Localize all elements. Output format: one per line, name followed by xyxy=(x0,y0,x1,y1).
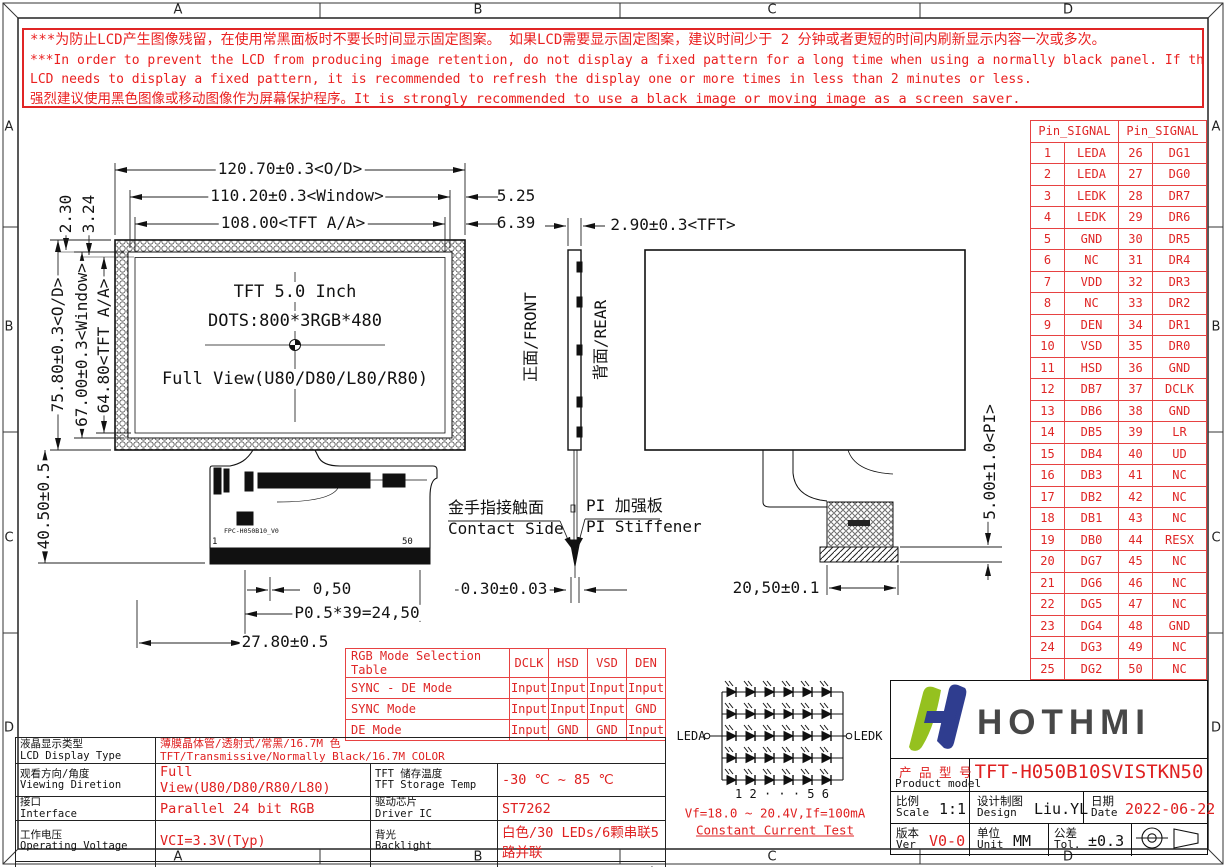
pin-number-cell: 10 xyxy=(1031,336,1065,358)
led-diode xyxy=(820,725,831,741)
hothmi-logo-mark xyxy=(897,681,977,758)
spec-value: ST7262 xyxy=(498,797,666,821)
image-retention-warning: ***为防止LCD产生图像残留，在使用常黑面板时不要长时间显示固定图案。 如果L… xyxy=(22,28,1204,108)
pi-stiffener-zh: PI 加强板 xyxy=(586,495,706,516)
led-diode xyxy=(782,769,793,785)
pin-number-cell: 25 xyxy=(1031,658,1065,680)
pin-row: 15DB440UD xyxy=(1031,443,1207,465)
pin-signal-cell: RESX xyxy=(1153,529,1207,551)
pin-signal-cell: NC xyxy=(1153,508,1207,530)
rgb-mode-label: SYNC Mode xyxy=(346,699,510,720)
pin-number-cell: 9 xyxy=(1031,314,1065,336)
spec-label: 工作电压Operating Voltage xyxy=(16,821,156,862)
pin-number-cell: 18 xyxy=(1031,508,1065,530)
side-view xyxy=(568,250,582,578)
spec-row-display-type: 液晶显示类型LCD Display Type 薄膜晶体管/透射式/常黑/16.7… xyxy=(16,738,666,764)
pin-signal-cell: NC xyxy=(1153,465,1207,487)
warning-line-zh: ***为防止LCD产生图像残留，在使用常黑面板时不要长时间显示固定图案。 如果L… xyxy=(30,31,1196,51)
spec-value-display-type: 薄膜晶体管/透射式/常黑/16.7M 色TFT/Transmissive/Nor… xyxy=(156,738,666,764)
spec-value: Full View(U80/D80/R80/L80) xyxy=(156,764,371,797)
zone-letter-top-b: B xyxy=(474,3,483,18)
pin-signal-cell: DG6 xyxy=(1065,572,1119,594)
led-diode xyxy=(763,769,774,785)
spec-row: TFT 工作温度TFT Operating Temp-30 ℃ ~ 80 ℃液晶… xyxy=(16,862,666,867)
led-diode xyxy=(744,725,755,741)
pin-signal-cell: DG1 xyxy=(1153,142,1207,164)
version-label: 版本Ver xyxy=(896,827,919,851)
pin-number-cell: 50 xyxy=(1119,658,1153,680)
led-diode xyxy=(782,681,793,697)
pin-signal-cell: DB0 xyxy=(1065,529,1119,551)
tolerance-label: 公差Tol. xyxy=(1054,827,1081,851)
scale-value: 1:1 xyxy=(939,800,966,818)
contact-side-zh: 金手指接触面 xyxy=(448,497,560,518)
pin-number-cell: 47 xyxy=(1119,594,1153,616)
zone-letter-right-c: C xyxy=(1211,531,1220,546)
pin-table-header-right: Pin_SIGNAL xyxy=(1119,121,1207,143)
pin-row: 1LEDA26DG1 xyxy=(1031,142,1207,164)
pin-signal-cell: DB7 xyxy=(1065,379,1119,401)
pin-number-cell: 28 xyxy=(1119,185,1153,207)
pin-row: 20DG745NC xyxy=(1031,551,1207,573)
spec-label: 观看方向/角度Viewing Diretion xyxy=(16,764,156,797)
pin-row: 9DEN34DR1 xyxy=(1031,314,1207,336)
pin-number-cell: 21 xyxy=(1031,572,1065,594)
spec-label: TFT 工作温度TFT Operating Temp xyxy=(16,862,156,867)
pin-number-cell: 32 xyxy=(1119,271,1153,293)
pin-number-cell: 6 xyxy=(1031,250,1065,272)
rgb-mode-value: Input xyxy=(549,699,588,720)
pin-table-header-row: Pin_SIGNAL Pin_SIGNAL xyxy=(1031,121,1207,143)
led-test-note: Constant Current Test xyxy=(696,823,854,838)
design-value: Liu.YL xyxy=(1034,800,1088,818)
led-diode xyxy=(744,747,755,763)
pin-number-cell: 40 xyxy=(1119,443,1153,465)
pin-number-cell: 31 xyxy=(1119,250,1153,272)
pin-signal-cell: LEDA xyxy=(1065,142,1119,164)
pin-signal-cell: GND xyxy=(1153,400,1207,422)
pin-row: 22DG547NC xyxy=(1031,594,1207,616)
pin-number-cell: 7 xyxy=(1031,271,1065,293)
rgb-col-hsd: HSD xyxy=(549,649,588,678)
dim-outline-height: 75.80±0.3<O/D> xyxy=(50,276,66,415)
pin-row: 25DG250NC xyxy=(1031,658,1207,680)
fpc-pin-50-label: 50 xyxy=(402,537,413,547)
spec-label-display-type: 液晶显示类型LCD Display Type xyxy=(16,738,156,764)
pin-number-cell: 46 xyxy=(1119,572,1153,594)
dim-active-area-width: 108.00<TFT A/A> xyxy=(219,215,368,231)
contact-side-en: Contact Side xyxy=(448,518,560,539)
panel-dots-text: DOTS:800*3RGB*480 xyxy=(205,311,385,331)
pin-row: 21DG646NC xyxy=(1031,572,1207,594)
pin-row: 19DB044RESX xyxy=(1031,529,1207,551)
dim-outline-width: 120.70±0.3<O/D> xyxy=(216,161,365,177)
rgb-mode-label: SYNC - DE Mode xyxy=(346,678,510,699)
dim-pin-pitch: P0.5*39=24,50 xyxy=(292,605,421,621)
dim-window-top-offset: 2.30 xyxy=(58,193,74,236)
dim-fpc-offset: 27.80±0.5 xyxy=(240,634,331,650)
lcd-spec-table: 液晶显示类型LCD Display Type 薄膜晶体管/透射式/常黑/16.7… xyxy=(15,737,666,867)
pin-signal-cell: GND xyxy=(1065,228,1119,250)
pin-row: 13DB638GND xyxy=(1031,400,1207,422)
rgb-table-title: RGB Mode Selection Table xyxy=(346,649,510,678)
zone-letter-bottom-c: C xyxy=(767,850,776,865)
dim-fpc-thickness: 0.30±0.03 xyxy=(459,581,550,597)
pin-signal-cell: NC xyxy=(1153,486,1207,508)
rgb-col-dclk: DCLK xyxy=(510,649,549,678)
pin-signal-cell: NC xyxy=(1153,594,1207,616)
rgb-col-vsd: VSD xyxy=(588,649,627,678)
pin-number-cell: 27 xyxy=(1119,164,1153,186)
led-diode xyxy=(763,681,774,697)
pin-row: 16DB341NC xyxy=(1031,465,1207,487)
zone-letter-right-a: A xyxy=(1212,120,1221,135)
pin-row: 23DG448GND xyxy=(1031,615,1207,637)
pin-signal-cell: DB3 xyxy=(1065,465,1119,487)
led-diode xyxy=(820,703,831,719)
pin-number-cell: 29 xyxy=(1119,207,1153,229)
spec-value: 白色/30 LEDs/6颗串联5路并联 xyxy=(498,821,666,862)
pin-number-cell: 44 xyxy=(1119,529,1153,551)
unit-value: MM xyxy=(1013,832,1031,850)
pi-stiffener-label: PI 加强板 PI Stiffener xyxy=(586,495,706,537)
dim-stiffener-width: 20,50±0.1 xyxy=(731,580,822,596)
pin-number-cell: 43 xyxy=(1119,508,1153,530)
rgb-mode-value: Input xyxy=(510,678,549,699)
zone-letter-left-b: B xyxy=(5,320,14,335)
led-diode xyxy=(725,747,736,763)
pin-signal-cell: NC xyxy=(1065,293,1119,315)
pin-number-cell: 22 xyxy=(1031,594,1065,616)
rgb-mode-value: Input xyxy=(627,678,666,699)
pin-row: 10VSD35DR0 xyxy=(1031,336,1207,358)
pin-signal-cell: DB5 xyxy=(1065,422,1119,444)
led-diode xyxy=(801,703,812,719)
pin-number-cell: 14 xyxy=(1031,422,1065,444)
pin-row: 14DB539LR xyxy=(1031,422,1207,444)
product-model-label-en: Product model xyxy=(895,777,981,790)
pin-number-cell: 36 xyxy=(1119,357,1153,379)
pin-signal-cell: DB2 xyxy=(1065,486,1119,508)
dim-pin-width: 0,50 xyxy=(311,581,354,597)
dim-window-edge-offset: 5.25 xyxy=(495,188,538,204)
product-model-value: TFT-H050B10SVISTKN50 xyxy=(971,761,1207,783)
pin-signal-cell: LEDA xyxy=(1065,164,1119,186)
led-diode xyxy=(725,703,736,719)
led-diode xyxy=(725,769,736,785)
pin-row: 2LEDA27DG0 xyxy=(1031,164,1207,186)
brand-name: HOTHMI xyxy=(977,703,1151,743)
warning-line-en2: LCD needs to display a fixed pattern, it… xyxy=(30,70,1196,90)
rgb-mode-value: Input xyxy=(588,699,627,720)
pin-number-cell: 34 xyxy=(1119,314,1153,336)
led-index-row: 1 2 · · · 5 6 xyxy=(735,787,829,801)
unit-label: 单位Unit xyxy=(977,827,1004,851)
pin-number-cell: 4 xyxy=(1031,207,1065,229)
rgb-mode-row: SYNC - DE ModeInputInputInputInput xyxy=(346,678,666,699)
rgb-mode-value: Input xyxy=(549,678,588,699)
pin-number-cell: 37 xyxy=(1119,379,1153,401)
fpc-part-number: FPC-H050B10_V0 xyxy=(224,527,279,535)
pin-row: 3LEDK28DR7 xyxy=(1031,185,1207,207)
led-diode xyxy=(744,703,755,719)
pin-signal-cell: DR7 xyxy=(1153,185,1207,207)
pin-signal-cell: DR3 xyxy=(1153,271,1207,293)
led-diode xyxy=(763,703,774,719)
led-anode-label: LEDA xyxy=(677,729,706,743)
fpc-pin-1-label: 1 xyxy=(212,537,217,547)
led-diode xyxy=(763,725,774,741)
pin-number-cell: 45 xyxy=(1119,551,1153,573)
spec-row: 观看方向/角度Viewing DiretionFull View(U80/D80… xyxy=(16,764,666,797)
pin-signal-cell: NC xyxy=(1153,572,1207,594)
zone-letter-top-d: D xyxy=(1063,3,1073,18)
tolerance-value: ±0.3 xyxy=(1088,832,1124,850)
zone-letter-right-d: D xyxy=(1211,721,1221,736)
rear-side-label: 背面/REAR xyxy=(593,298,609,382)
pin-signal-cell: VSD xyxy=(1065,336,1119,358)
pin-number-cell: 2 xyxy=(1031,164,1065,186)
spec-label: 背光Backlight xyxy=(371,821,498,862)
dim-aa-top-offset: 3.24 xyxy=(81,193,97,236)
spec-value: Parallel 24 bit RGB xyxy=(156,797,371,821)
pin-signal-cell: DG2 xyxy=(1065,658,1119,680)
led-diode xyxy=(744,681,755,697)
pin-signal-cell: DG4 xyxy=(1065,615,1119,637)
pin-signal-cell: NC xyxy=(1065,250,1119,272)
pin-signal-cell: DB4 xyxy=(1065,443,1119,465)
pin-number-cell: 12 xyxy=(1031,379,1065,401)
pin-number-cell: 49 xyxy=(1119,637,1153,659)
pin-number-cell: 1 xyxy=(1031,142,1065,164)
pin-number-cell: 48 xyxy=(1119,615,1153,637)
rgb-mode-value: GND xyxy=(627,699,666,720)
side-dimensions xyxy=(448,218,660,603)
dim-window-height: 67.00±0.3<Window> xyxy=(74,261,90,429)
led-diode xyxy=(763,747,774,763)
contact-side-label: 金手指接触面 Contact Side xyxy=(448,497,560,539)
pin-number-cell: 19 xyxy=(1031,529,1065,551)
rgb-mode-value: Input xyxy=(588,678,627,699)
pi-stiffener-en: PI Stiffener xyxy=(586,516,706,537)
warning-line-en1: ***In order to prevent the LCD from prod… xyxy=(30,51,1196,71)
design-label: 设计制图Design xyxy=(977,795,1023,819)
pin-row: 17DB242NC xyxy=(1031,486,1207,508)
spec-value: -30 ℃ ~ 80 ℃ xyxy=(156,862,371,867)
led-diode xyxy=(725,681,736,697)
pin-number-cell: 5 xyxy=(1031,228,1065,250)
rgb-mode-value: Input xyxy=(510,699,549,720)
pin-signal-cell: DR6 xyxy=(1153,207,1207,229)
dim-pi-height: 5.00±1.0<PI> xyxy=(982,402,998,522)
spec-value: 1000 cd/m²(Typ)/固定电流测试 xyxy=(498,862,666,867)
spec-label: 驱动芯片Driver IC xyxy=(371,797,498,821)
led-diode xyxy=(801,725,812,741)
rgb-mode-row: SYNC ModeInputInputInputGND xyxy=(346,699,666,720)
pin-row: 12DB737DCLK xyxy=(1031,379,1207,401)
pin-number-cell: 41 xyxy=(1119,465,1153,487)
pin-number-cell: 26 xyxy=(1119,142,1153,164)
pin-signal-cell: LEDK xyxy=(1065,185,1119,207)
pin-number-cell: 20 xyxy=(1031,551,1065,573)
pin-signal-cell: LR xyxy=(1153,422,1207,444)
pin-number-cell: 35 xyxy=(1119,336,1153,358)
pin-signal-cell: DB1 xyxy=(1065,508,1119,530)
title-block: HOTHMI 产 品 型 号 Product model TFT-H050B10… xyxy=(890,680,1208,855)
dim-tft-thickness: 2.90±0.3<TFT> xyxy=(608,217,737,233)
pin-signal-cell: HSD xyxy=(1065,357,1119,379)
datasheet-page: A B C D A B C D A B C D A B C D ***为防止LC… xyxy=(0,0,1226,867)
pin-number-cell: 24 xyxy=(1031,637,1065,659)
pin-signal-cell: GND xyxy=(1153,615,1207,637)
led-vf-spec: Vf=18.0 ~ 20.4V,If=100mA xyxy=(685,806,866,821)
zone-letter-top-a: A xyxy=(174,3,183,18)
zone-letter-left-c: C xyxy=(4,531,13,546)
pin-row: 7VDD32DR3 xyxy=(1031,271,1207,293)
pin-number-cell: 8 xyxy=(1031,293,1065,315)
led-diode xyxy=(801,681,812,697)
version-value: V0-0 xyxy=(929,832,965,850)
warning-line-mixed: 强烈建议使用黑色图像或移动图像作为屏幕保护程序。It is strongly r… xyxy=(30,90,1196,109)
pin-number-cell: 16 xyxy=(1031,465,1065,487)
zone-letter-left-d: D xyxy=(4,721,14,736)
led-diode xyxy=(725,725,736,741)
pin-row: 4LEDK29DR6 xyxy=(1031,207,1207,229)
spec-value: -30 ℃ ~ 85 ℃ xyxy=(498,764,666,797)
dim-window-width: 110.20±0.3<Window> xyxy=(208,188,385,204)
dim-fpc-length: 40.50±0.5 xyxy=(36,461,52,552)
zone-letter-right-b: B xyxy=(1212,320,1221,335)
date-label: 日期Date xyxy=(1091,795,1118,819)
dim-aa-edge-offset: 6.39 xyxy=(495,215,538,231)
pin-signal-cell: NC xyxy=(1153,551,1207,573)
zone-letter-top-c: C xyxy=(767,3,776,18)
pin-row: 18DB143NC xyxy=(1031,508,1207,530)
pin-row: 11HSD36GND xyxy=(1031,357,1207,379)
pin-number-cell: 39 xyxy=(1119,422,1153,444)
pin-table-header-left: Pin_SIGNAL xyxy=(1031,121,1119,143)
pin-number-cell: 23 xyxy=(1031,615,1065,637)
pin-signal-cell: UD xyxy=(1153,443,1207,465)
pin-signal-cell: VDD xyxy=(1065,271,1119,293)
pin-signal-cell: DR0 xyxy=(1153,336,1207,358)
led-diode xyxy=(782,703,793,719)
led-diode xyxy=(820,769,831,785)
pin-number-cell: 17 xyxy=(1031,486,1065,508)
pin-signal-cell: NC xyxy=(1153,658,1207,680)
pin-number-cell: 3 xyxy=(1031,185,1065,207)
pin-number-cell: 33 xyxy=(1119,293,1153,315)
zone-letter-left-a: A xyxy=(5,120,14,135)
led-diode xyxy=(782,747,793,763)
led-circuit xyxy=(704,681,852,785)
pin-number-cell: 38 xyxy=(1119,400,1153,422)
date-value: 2022-06-22 xyxy=(1125,800,1215,818)
pin-signal-cell: DB6 xyxy=(1065,400,1119,422)
rgb-col-den: DEN xyxy=(627,649,666,678)
front-view-outline xyxy=(115,240,465,450)
pin-number-cell: 15 xyxy=(1031,443,1065,465)
pin-number-cell: 13 xyxy=(1031,400,1065,422)
led-diode xyxy=(801,769,812,785)
pin-row: 6NC31DR4 xyxy=(1031,250,1207,272)
pin-number-cell: 11 xyxy=(1031,357,1065,379)
pin-row: 8NC33DR2 xyxy=(1031,293,1207,315)
led-diode xyxy=(820,747,831,763)
panel-size-text: TFT 5.0 Inch xyxy=(231,282,360,302)
spec-label: 接口Interface xyxy=(16,797,156,821)
front-side-label: 正面/FRONT xyxy=(523,290,539,384)
led-diode xyxy=(744,769,755,785)
pin-signal-cell: DR5 xyxy=(1153,228,1207,250)
dim-active-area-height: 64.80<TFT A/A> xyxy=(96,277,112,416)
pin-signal-cell: DG5 xyxy=(1065,594,1119,616)
pin-signal-cell: DR4 xyxy=(1153,250,1207,272)
spec-row: 接口InterfaceParallel 24 bit RGB驱动芯片Driver… xyxy=(16,797,666,821)
pin-signal-table: Pin_SIGNAL Pin_SIGNAL 1LEDA26DG12LEDA27D… xyxy=(1030,120,1207,680)
pin-signal-cell: DR1 xyxy=(1153,314,1207,336)
spec-label: TFT 储存温度TFT Storage Temp xyxy=(371,764,498,797)
led-diode xyxy=(820,681,831,697)
pin-number-cell: 30 xyxy=(1119,228,1153,250)
led-cathode-label: LEDK xyxy=(854,729,883,743)
pin-number-cell: 42 xyxy=(1119,486,1153,508)
pin-row: 5GND30DR5 xyxy=(1031,228,1207,250)
pin-row: 24DG349NC xyxy=(1031,637,1207,659)
spec-row: 工作电压Operating VoltageVCI=3.3V(Typ)背光Back… xyxy=(16,821,666,862)
pin-signal-cell: LEDK xyxy=(1065,207,1119,229)
pin-signal-cell: NC xyxy=(1153,637,1207,659)
pin-signal-cell: DEN xyxy=(1065,314,1119,336)
spec-value: VCI=3.3V(Typ) xyxy=(156,821,371,862)
spec-label: 液晶模组亮度LCM Brightness xyxy=(371,862,498,867)
led-diode xyxy=(801,747,812,763)
scale-label: 比例Scale xyxy=(896,795,929,819)
pin-signal-cell: DG0 xyxy=(1153,164,1207,186)
pin-signal-cell: DG3 xyxy=(1065,637,1119,659)
rgb-table-header-row: RGB Mode Selection Table DCLK HSD VSD DE… xyxy=(346,649,666,678)
pin-signal-cell: DR2 xyxy=(1153,293,1207,315)
pin-signal-cell: GND xyxy=(1153,357,1207,379)
pin-signal-cell: DG7 xyxy=(1065,551,1119,573)
led-diode xyxy=(782,725,793,741)
rgb-mode-selection-table: RGB Mode Selection Table DCLK HSD VSD DE… xyxy=(345,648,666,741)
pin-signal-cell: DCLK xyxy=(1153,379,1207,401)
panel-view-text: Full View(U80/D80/L80/R80) xyxy=(159,369,431,389)
